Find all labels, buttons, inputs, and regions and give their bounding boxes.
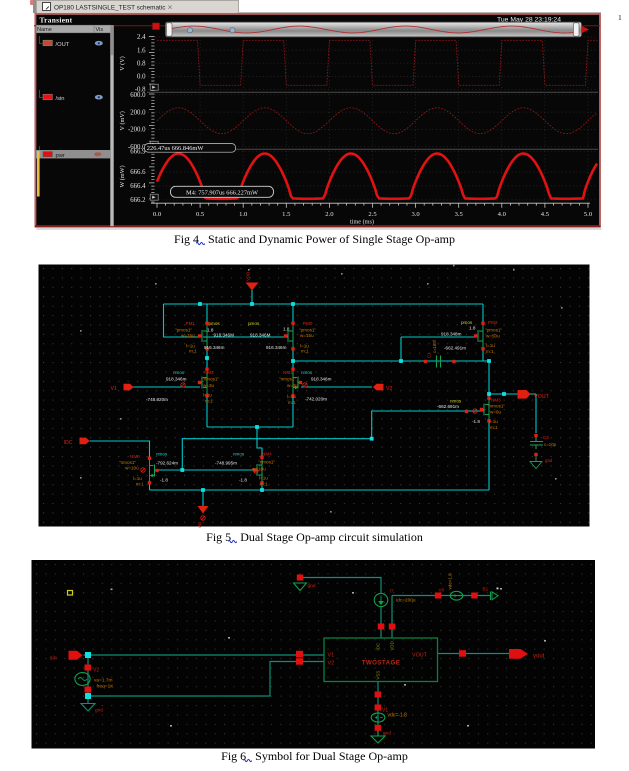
svg-text:sin: sin — [50, 656, 57, 662]
svg-text:V1: V1 — [328, 653, 335, 659]
svg-text:I7: I7 — [390, 589, 394, 595]
svg-text:vdc=-1.8: vdc=-1.8 — [388, 713, 408, 719]
svg-text:VDD: VDD — [390, 641, 395, 650]
svg-text:IDC: IDC — [376, 643, 381, 651]
svg-text:freq=1K: freq=1K — [97, 684, 115, 690]
svg-text:gnd: gnd — [95, 708, 103, 714]
svg-text:VSS: VSS — [376, 671, 381, 680]
svg-text:idc=200u: idc=200u — [396, 598, 416, 604]
svg-text:V2: V2 — [93, 668, 99, 674]
svg-text:gnd: gnd — [383, 731, 391, 737]
svg-text:VOUT: VOUT — [412, 653, 428, 659]
svg-text:vdc=1.8: vdc=1.8 — [448, 573, 453, 590]
svg-text:V0: V0 — [439, 588, 445, 593]
svg-text:TWOSTAGE: TWOSTAGE — [362, 660, 401, 667]
svg-text:B1: B1 — [483, 587, 489, 592]
svg-text:va=1.7m: va=1.7m — [94, 678, 113, 684]
svg-text:gnd: gnd — [308, 583, 316, 589]
svg-text:vout: vout — [533, 654, 545, 660]
svg-text:V2: V2 — [328, 661, 335, 667]
